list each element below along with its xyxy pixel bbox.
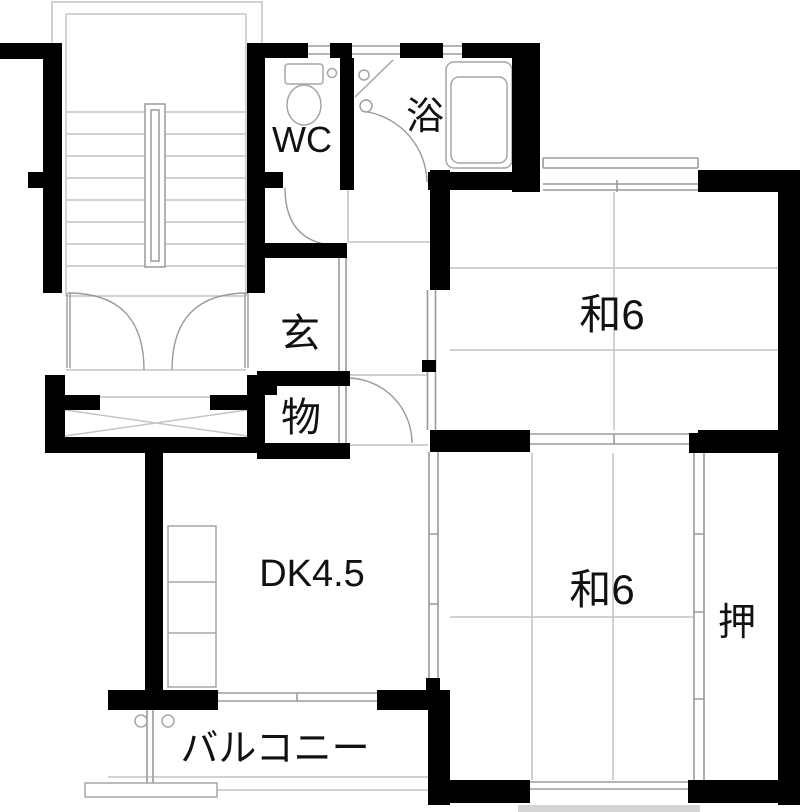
room-label-storage: 物 [281, 396, 321, 440]
floor-plan-canvas: WC 浴 玄 物 和6 和6 DK4.5 押 バルコニー [0, 0, 800, 812]
room-label-dk: DK4.5 [259, 553, 365, 595]
room-label-wc: WC [272, 119, 332, 160]
room-label-bath: 浴 [406, 96, 444, 138]
kitchen-counter-icon [168, 526, 216, 687]
door-bath-knob [360, 100, 372, 112]
balcony-drain-icon-2 [162, 715, 174, 727]
toilet-flush-button-icon [328, 69, 337, 78]
room-label-tatami-lower: 和6 [569, 566, 634, 613]
toilet-tank-icon [285, 64, 323, 84]
south-veranda-slab [518, 805, 700, 812]
stair-rail [145, 104, 165, 267]
stair-rail-inner [151, 110, 159, 261]
bath-drain-icon [359, 70, 369, 80]
room-label-closet: 押 [718, 602, 756, 644]
bathtub-inner-icon [451, 77, 507, 163]
room-label-balcony: バルコニー [180, 728, 369, 770]
room-label-tatami-upper: 和6 [579, 291, 644, 338]
room-label-entrance: 玄 [280, 312, 320, 356]
balcony-drain-icon-1 [135, 715, 147, 727]
balcony-ledge [85, 783, 217, 797]
floor-plan: WC 浴 玄 物 和6 和6 DK4.5 押 バルコニー [0, 0, 800, 812]
